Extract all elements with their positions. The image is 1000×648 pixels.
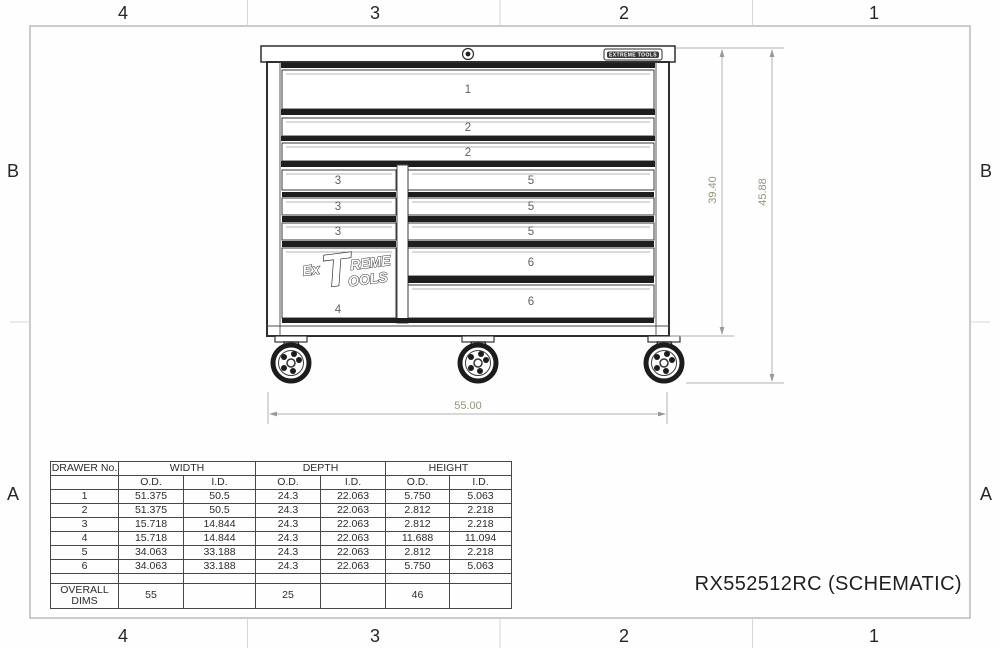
table-cell: 5.063 xyxy=(450,560,512,574)
table-cell: 25 xyxy=(256,584,321,609)
table-header: HEIGHT xyxy=(386,462,512,476)
table-cell xyxy=(51,476,119,490)
table-cell: 46 xyxy=(386,584,450,609)
drawer-number: 5 xyxy=(528,201,534,213)
table-cell: 2.812 xyxy=(386,546,450,560)
drawer-number: 2 xyxy=(465,147,471,159)
table-cell: 55 xyxy=(119,584,184,609)
table-header: DRAWER No. xyxy=(51,462,119,476)
table-cell: 2.218 xyxy=(450,546,512,560)
table-header: O.D. xyxy=(256,476,321,490)
table-cell xyxy=(119,574,184,584)
table-header: O.D. xyxy=(386,476,450,490)
brand-badge: EXTREME TOOLS xyxy=(604,49,662,60)
table-cell: 33.188 xyxy=(184,560,256,574)
zone-label-top: 1 xyxy=(869,3,879,23)
table-header: I.D. xyxy=(184,476,256,490)
zone-label-bottom: 4 xyxy=(118,626,128,646)
table-cell: 5.750 xyxy=(386,560,450,574)
table-cell xyxy=(450,584,512,609)
table-cell: 33.188 xyxy=(184,546,256,560)
dim-overall-width: 55.00 xyxy=(454,400,482,412)
zone-label-top: 2 xyxy=(619,3,629,23)
table-cell xyxy=(386,574,450,584)
casters xyxy=(273,336,682,381)
tool-cabinet-drawing: EXTREME TOOLS 1 2 2 3 xyxy=(261,46,682,381)
drawer-number: 5 xyxy=(528,175,534,187)
table-header: WIDTH xyxy=(119,462,256,476)
table-cell xyxy=(184,574,256,584)
zone-label-left: B xyxy=(7,161,19,181)
zone-label-bottom: 2 xyxy=(619,626,629,646)
sheet-title: RX552512RC (SCHEMATIC) xyxy=(695,573,962,596)
logo-text-ex: Ex xyxy=(302,261,322,279)
table-cell xyxy=(184,584,256,609)
table-row: 3 15.718 14.844 24.3 22.063 2.812 2.218 xyxy=(51,518,512,532)
table-cell xyxy=(450,574,512,584)
schematic-sheet: 4 3 2 1 4 3 2 1 B A B A xyxy=(0,0,1000,648)
table-cell: 24.3 xyxy=(256,490,321,504)
zone-label-bottom: 1 xyxy=(869,626,879,646)
table-cell xyxy=(321,574,386,584)
table-cell: 24.3 xyxy=(256,504,321,518)
caster-wheel xyxy=(646,336,682,381)
table-cell: 22.063 xyxy=(321,504,386,518)
table-cell: 2.218 xyxy=(450,518,512,532)
drawer-number: 1 xyxy=(465,84,471,96)
table-cell: 22.063 xyxy=(321,518,386,532)
table-overall-row: OVERALL DIMS 55 25 46 xyxy=(51,584,512,609)
table-cell: 22.063 xyxy=(321,532,386,546)
drawer-divider-post xyxy=(397,165,408,323)
drawer-spec-table: DRAWER No. WIDTH DEPTH HEIGHT O.D. I.D. … xyxy=(50,461,512,609)
table-cell: 50.5 xyxy=(184,490,256,504)
table-cell: 3 xyxy=(51,518,119,532)
table-cell: 2 xyxy=(51,504,119,518)
table-cell: 24.3 xyxy=(256,546,321,560)
table-cell: 2.218 xyxy=(450,504,512,518)
brand-badge-label: EXTREME TOOLS xyxy=(609,53,657,59)
caster-wheel xyxy=(460,336,496,381)
table-cell: 24.3 xyxy=(256,532,321,546)
table-spacer-row xyxy=(51,574,512,584)
dim-body-height: 39.40 xyxy=(707,176,719,204)
table-cell: 5.063 xyxy=(450,490,512,504)
drawer-number: 5 xyxy=(528,226,534,238)
table-row: 6 34.063 33.188 24.3 22.063 5.750 5.063 xyxy=(51,560,512,574)
zone-label-top: 3 xyxy=(370,3,380,23)
table-cell xyxy=(51,574,119,584)
table-cell: 22.063 xyxy=(321,560,386,574)
table-cell: 51.375 xyxy=(119,504,184,518)
zone-label-bottom: 3 xyxy=(370,626,380,646)
table-cell: 2.812 xyxy=(386,504,450,518)
table-cell: 11.094 xyxy=(450,532,512,546)
table-cell: 34.063 xyxy=(119,546,184,560)
table-cell: 22.063 xyxy=(321,490,386,504)
table-cell: 51.375 xyxy=(119,490,184,504)
caster-wheel xyxy=(273,336,309,381)
table-cell: 24.3 xyxy=(256,518,321,532)
zone-label-top: 4 xyxy=(118,3,128,23)
table-header: DEPTH xyxy=(256,462,386,476)
table-cell: 24.3 xyxy=(256,560,321,574)
drawer-number: 3 xyxy=(335,175,341,187)
table-header: O.D. xyxy=(119,476,184,490)
table-cell-overall-label: OVERALL DIMS xyxy=(51,584,119,609)
drawer-number: 3 xyxy=(335,226,341,238)
table-cell: 11.688 xyxy=(386,532,450,546)
zone-label-right: A xyxy=(980,484,992,504)
drawer-number: 2 xyxy=(465,122,471,134)
table-row: 1 51.375 50.5 24.3 22.063 5.750 5.063 xyxy=(51,490,512,504)
dim-overall-height: 45.88 xyxy=(757,178,769,206)
table-cell: 4 xyxy=(51,532,119,546)
table-cell: 1 xyxy=(51,490,119,504)
zone-label-right: B xyxy=(980,161,992,181)
table-cell: 15.718 xyxy=(119,532,184,546)
drawer-number: 4 xyxy=(335,304,342,316)
right-drawer-column: 5 5 5 6 6 xyxy=(408,170,654,318)
table-row: 2 51.375 50.5 24.3 22.063 2.812 2.218 xyxy=(51,504,512,518)
table-cell: 14.844 xyxy=(184,532,256,546)
table-row: 4 15.718 14.844 24.3 22.063 11.688 11.09… xyxy=(51,532,512,546)
table-cell: 15.718 xyxy=(119,518,184,532)
table-cell xyxy=(321,584,386,609)
drawer-number: 6 xyxy=(528,296,534,308)
drawer-number: 3 xyxy=(335,201,341,213)
table-header: I.D. xyxy=(450,476,512,490)
zone-label-left: A xyxy=(7,484,19,504)
table-cell: 34.063 xyxy=(119,560,184,574)
table-cell: 6 xyxy=(51,560,119,574)
table-subheader-row: O.D. I.D. O.D. I.D. O.D. I.D. xyxy=(51,476,512,490)
drawer-number: 6 xyxy=(528,257,534,269)
table-cell: 50.5 xyxy=(184,504,256,518)
table-row: 5 34.063 33.188 24.3 22.063 2.812 2.218 xyxy=(51,546,512,560)
table-header-row: DRAWER No. WIDTH DEPTH HEIGHT xyxy=(51,462,512,476)
table-cell: 5.750 xyxy=(386,490,450,504)
table-cell: 14.844 xyxy=(184,518,256,532)
table-cell: 5 xyxy=(51,546,119,560)
table-header: I.D. xyxy=(321,476,386,490)
table-cell: 22.063 xyxy=(321,546,386,560)
table-cell: 2.812 xyxy=(386,518,450,532)
table-cell xyxy=(256,574,321,584)
